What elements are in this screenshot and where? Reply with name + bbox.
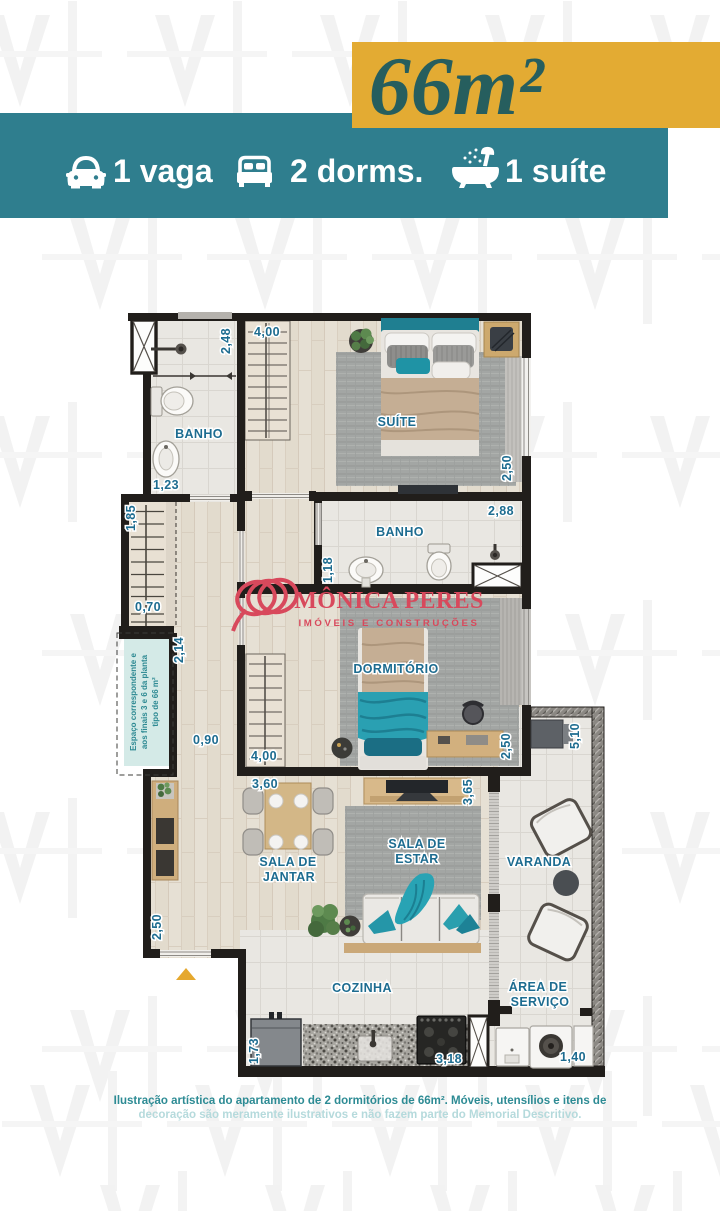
svg-text:Ilustração artística do aparta: Ilustração artística do apartamento de 2… xyxy=(114,1095,607,1107)
svg-text:1 vaga: 1 vaga xyxy=(113,153,213,189)
svg-text:5,10: 5,10 xyxy=(568,723,582,749)
svg-text:ÁREA DE: ÁREA DE xyxy=(509,979,568,994)
svg-text:1,73: 1,73 xyxy=(247,1038,261,1064)
svg-text:1,23: 1,23 xyxy=(153,478,179,492)
svg-text:MÔNICA PERES: MÔNICA PERES xyxy=(294,587,484,614)
svg-text:tipo de 66 m²: tipo de 66 m² xyxy=(151,677,160,727)
svg-text:BANHO: BANHO xyxy=(376,525,424,539)
svg-text:SERVIÇO: SERVIÇO xyxy=(511,995,570,1009)
svg-text:2,50: 2,50 xyxy=(500,455,514,481)
svg-text:1,40: 1,40 xyxy=(560,1050,586,1064)
svg-text:aos finais 3 e 6 da planta: aos finais 3 e 6 da planta xyxy=(140,654,149,749)
svg-text:3,60: 3,60 xyxy=(252,777,278,791)
svg-text:1 suíte: 1 suíte xyxy=(505,153,606,189)
svg-text:Espaço correspondente e: Espaço correspondente e xyxy=(129,653,138,751)
svg-text:2,50: 2,50 xyxy=(499,733,513,759)
svg-text:decoração são meramente ilustr: decoração são meramente ilustrativos e n… xyxy=(139,1109,582,1121)
svg-text:0,90: 0,90 xyxy=(193,733,219,747)
svg-text:2,48: 2,48 xyxy=(219,328,233,354)
svg-text:0,70: 0,70 xyxy=(135,600,161,614)
svg-text:1,18: 1,18 xyxy=(321,557,335,583)
svg-text:1,85: 1,85 xyxy=(124,505,138,531)
svg-text:2 dorms.: 2 dorms. xyxy=(290,153,423,189)
svg-text:COZINHA: COZINHA xyxy=(332,981,392,995)
svg-text:SUÍTE: SUÍTE xyxy=(378,414,417,429)
svg-text:2,14: 2,14 xyxy=(172,637,186,663)
svg-text:SALA DE: SALA DE xyxy=(388,837,445,851)
svg-text:3,18: 3,18 xyxy=(436,1052,462,1066)
svg-text:4,00: 4,00 xyxy=(251,749,277,763)
svg-text:4,00: 4,00 xyxy=(254,325,280,339)
svg-text:2,50: 2,50 xyxy=(150,914,164,940)
svg-text:2,88: 2,88 xyxy=(488,504,514,518)
svg-text:VARANDA: VARANDA xyxy=(507,855,571,869)
svg-text:66m²: 66m² xyxy=(369,40,545,133)
svg-text:JANTAR: JANTAR xyxy=(263,870,315,884)
svg-text:ESTAR: ESTAR xyxy=(395,852,438,866)
svg-text:SALA DE: SALA DE xyxy=(259,855,316,869)
svg-text:DORMITÓRIO: DORMITÓRIO xyxy=(353,661,438,676)
svg-text:3,65: 3,65 xyxy=(461,779,475,805)
svg-text:BANHO: BANHO xyxy=(175,427,223,441)
svg-text:IMÓVEIS E CONSTRUÇÕES: IMÓVEIS E CONSTRUÇÕES xyxy=(299,617,480,629)
